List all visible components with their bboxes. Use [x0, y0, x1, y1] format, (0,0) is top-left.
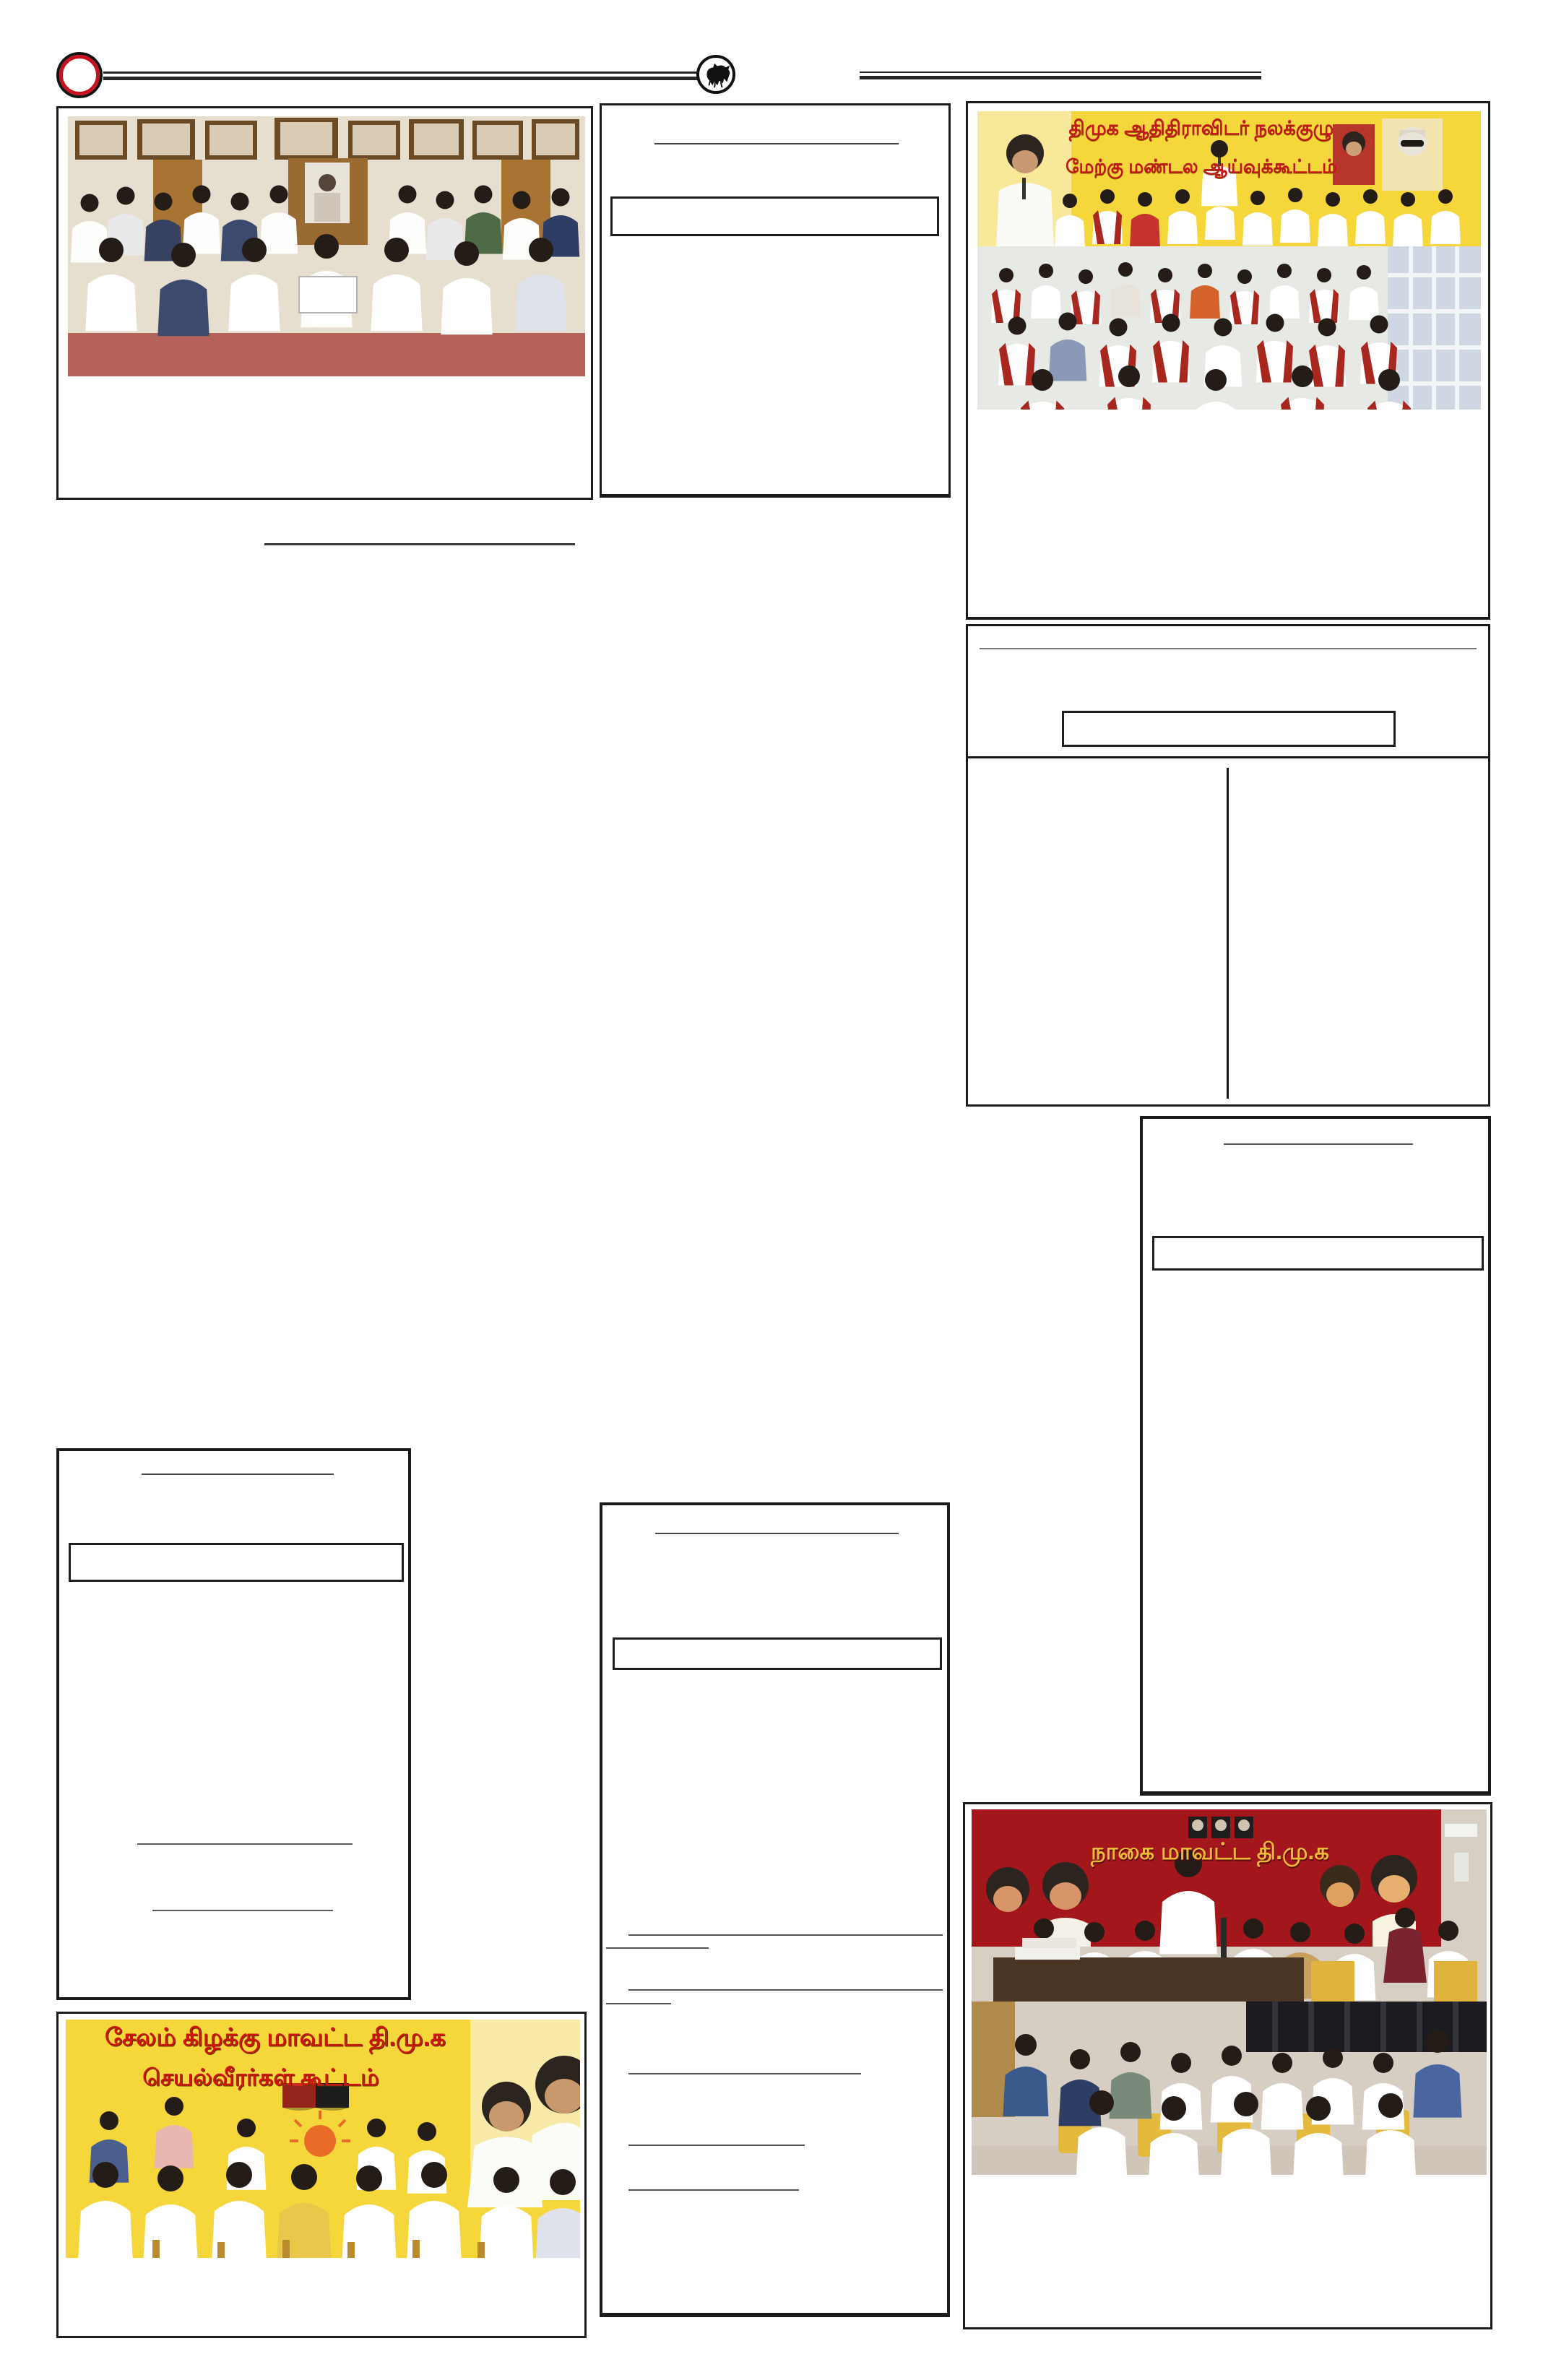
article-frame-top-left — [56, 106, 593, 500]
photo-frame-nagai: நாகை மாவட்ட தி.மு.க — [963, 1802, 1492, 2329]
body-underline — [606, 1947, 709, 1949]
newspaper-page: திமுக ஆதிதிராவிடர் நலக்குழு மேற்கு மண்டல… — [0, 0, 1543, 2380]
banner-text-line2: செயல்வீரர்கள் கூட்டம் — [109, 2064, 412, 2091]
masthead-rule-left — [103, 72, 697, 80]
photo-shawl-crowd — [977, 246, 1481, 410]
photo-nagai-meeting: நாகை மாவட்ட தி.மு.க — [972, 1809, 1487, 2002]
headline-rule — [1224, 1143, 1413, 1145]
article-frame-top-middle — [600, 103, 951, 498]
body-underline — [628, 1989, 943, 1991]
banner-text-line1: நாகை மாவட்ட தி.மு.க — [1008, 1838, 1412, 1865]
body-underline — [628, 1934, 943, 1936]
subhead-box — [1152, 1236, 1484, 1271]
body-underline — [628, 2189, 799, 2191]
subhead-box — [613, 1637, 942, 1670]
photo-group-felicitation — [68, 116, 585, 376]
article-frame-left-middle — [56, 1448, 411, 2000]
photo-adidravidar-meeting: திமுக ஆதிதிராவிடர் நலக்குழு மேற்கு மண்டல… — [977, 111, 1481, 246]
headline-rule — [655, 1533, 899, 1534]
photo-salem-east-meeting: சேலம் கிழக்கு மாவட்ட தி.மு.க செயல்வீரர்க… — [66, 2020, 580, 2258]
crosshead-rule — [152, 1910, 333, 1911]
headline-rule — [980, 648, 1477, 649]
crosshead-rule — [137, 1843, 353, 1845]
subhead-box — [610, 196, 939, 236]
masthead-rule-right — [860, 72, 1261, 79]
headline-rule-top-left — [264, 543, 575, 545]
banner-text-line1: சேலம் கிழக்கு மாவட்ட தி.மு.க — [80, 2024, 470, 2052]
photo-frame-salem-east: சேலம் கிழக்கு மாவட்ட தி.மு.க செயல்வீரர்க… — [56, 2012, 587, 2338]
headline-rule — [142, 1474, 334, 1475]
body-underline — [606, 2003, 671, 2004]
article-frame-top-right: திமுக ஆதிதிராவிடர் நலக்குழு மேற்கு மண்டல… — [966, 101, 1490, 620]
banner-text-line1: திமுக ஆதிதிராவிடர் நலக்குழு — [1028, 117, 1375, 139]
headline-rule — [654, 143, 899, 144]
body-underline — [628, 2145, 805, 2146]
article-frame-center-bottom — [600, 1502, 950, 2317]
red-ring-icon — [56, 52, 103, 98]
subhead-box — [1062, 711, 1396, 747]
article-frame-right-lower — [1140, 1116, 1491, 1796]
column-divider — [1227, 768, 1229, 1099]
article-frame-right-middle — [966, 624, 1490, 1107]
photo-nagai-audience — [972, 2002, 1487, 2175]
bull-emblem-icon — [696, 55, 735, 94]
section-separator — [968, 756, 1488, 758]
body-underline — [628, 2073, 861, 2074]
banner-text-line2: மேற்கு மண்டல ஆய்வுக்கூட்டம் — [1042, 156, 1360, 178]
subhead-box — [69, 1543, 404, 1582]
